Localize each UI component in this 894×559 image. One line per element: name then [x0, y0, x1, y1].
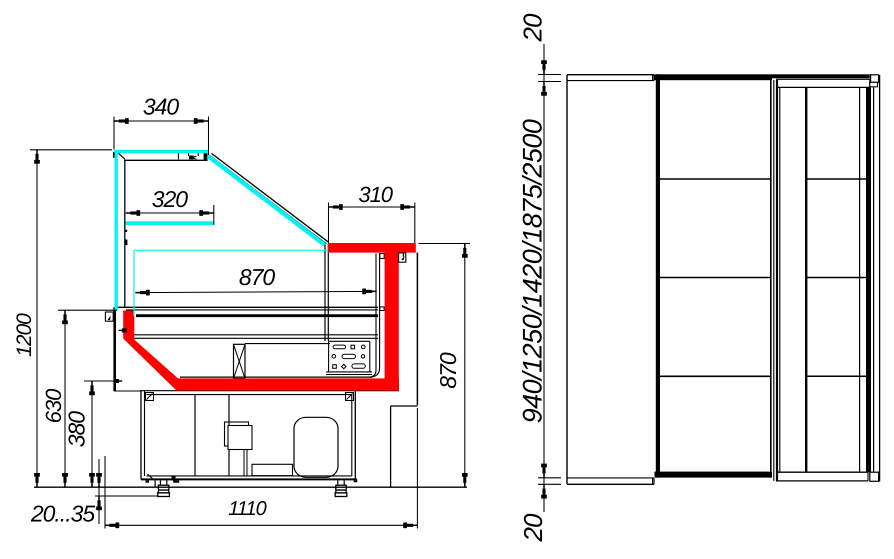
svg-text:870: 870: [435, 352, 461, 389]
svg-text:20: 20: [518, 513, 548, 542]
svg-text:630: 630: [41, 388, 66, 423]
svg-text:1200: 1200: [13, 313, 36, 357]
svg-text:870: 870: [239, 264, 276, 290]
svg-text:340: 340: [143, 93, 180, 119]
svg-text:380: 380: [64, 411, 90, 448]
svg-text:20: 20: [518, 13, 548, 42]
svg-text:310: 310: [358, 182, 393, 207]
svg-text:1110: 1110: [228, 498, 266, 520]
svg-text:320: 320: [152, 186, 189, 212]
svg-text:940/1250/1420/1875/2500: 940/1250/1420/1875/2500: [518, 119, 548, 423]
svg-text:20...35: 20...35: [30, 500, 96, 526]
